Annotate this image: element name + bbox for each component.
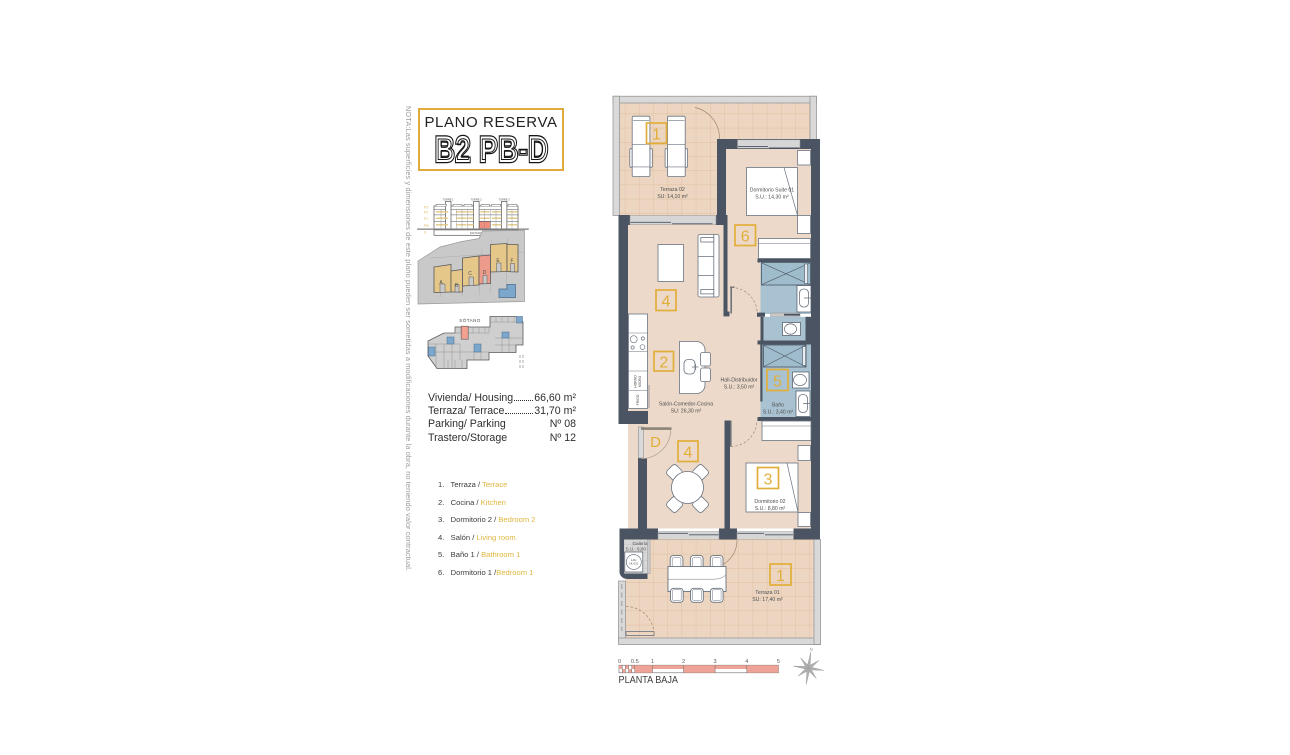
- svg-text:SU: 14,10 m²: SU: 14,10 m²: [657, 194, 688, 200]
- svg-text:Hall-Distribuidor: Hall-Distribuidor: [721, 378, 758, 384]
- svg-text:C: C: [468, 271, 472, 277]
- svg-text:4: 4: [684, 445, 693, 462]
- svg-text:P2: P2: [424, 211, 428, 215]
- svg-text:TORRE 2: TORRE 2: [470, 197, 482, 201]
- svg-text:S.U.: 8,80 m²: S.U.: 8,80 m²: [755, 506, 786, 512]
- svg-text:4: 4: [745, 659, 748, 665]
- svg-text:S: S: [424, 231, 427, 235]
- svg-text:PB: PB: [424, 224, 429, 228]
- svg-text:P1: P1: [424, 217, 428, 221]
- svg-text:S.U.: 14,30 m²: S.U.: 14,30 m²: [755, 195, 789, 201]
- svg-text:0: 0: [618, 659, 621, 665]
- svg-text:TORRE 3: TORRE 3: [498, 197, 510, 201]
- svg-text:Terraza 01: Terraza 01: [755, 590, 780, 596]
- svg-text:Galería: Galería: [632, 541, 648, 546]
- svg-text:5: 5: [773, 374, 782, 391]
- svg-text:1: 1: [776, 568, 785, 585]
- svg-text:SÓTANO: SÓTANO: [459, 317, 480, 323]
- svg-text:Terraza 02: Terraza 02: [660, 187, 685, 193]
- svg-text:PLANTA BAJA: PLANTA BAJA: [619, 675, 679, 686]
- svg-text:Salón-Comedor-Cocina: Salón-Comedor-Cocina: [659, 402, 713, 408]
- svg-text:2: 2: [659, 355, 668, 372]
- svg-text:S.U.: 3,40 m²: S.U.: 3,40 m²: [763, 410, 794, 416]
- svg-text:N: N: [809, 647, 813, 652]
- svg-text:NUCO: NUCO: [629, 562, 638, 566]
- svg-text:SU: 17,40 m²: SU: 17,40 m²: [752, 597, 783, 603]
- svg-text:Baño: Baño: [772, 403, 784, 409]
- svg-text:S.U.: 3,50 m²: S.U.: 3,50 m²: [724, 385, 755, 391]
- svg-text:1: 1: [651, 659, 654, 665]
- svg-text:4: 4: [662, 294, 671, 311]
- svg-text:3: 3: [764, 472, 773, 489]
- svg-text:D: D: [483, 270, 487, 276]
- svg-text:HORNO: HORNO: [634, 375, 638, 388]
- svg-text:5: 5: [777, 659, 780, 665]
- svg-text:P3: P3: [424, 206, 428, 210]
- svg-text:F: F: [510, 259, 513, 265]
- svg-text:3: 3: [714, 659, 717, 665]
- svg-text:Dormitorio Suite 01: Dormitorio Suite 01: [750, 188, 795, 194]
- svg-text:FRIGO: FRIGO: [636, 394, 640, 405]
- svg-text:1: 1: [652, 127, 661, 144]
- svg-text:0.5: 0.5: [631, 659, 639, 665]
- svg-text:2: 2: [682, 659, 685, 665]
- svg-text:Dormitorio 02: Dormitorio 02: [754, 499, 785, 505]
- svg-text:D: D: [650, 434, 661, 451]
- svg-text:MICRO: MICRO: [638, 375, 642, 387]
- svg-text:6: 6: [741, 229, 750, 246]
- svg-text:SU: 26,30 m²: SU: 26,30 m²: [671, 409, 702, 415]
- svg-text:TORRE 1: TORRE 1: [442, 197, 454, 201]
